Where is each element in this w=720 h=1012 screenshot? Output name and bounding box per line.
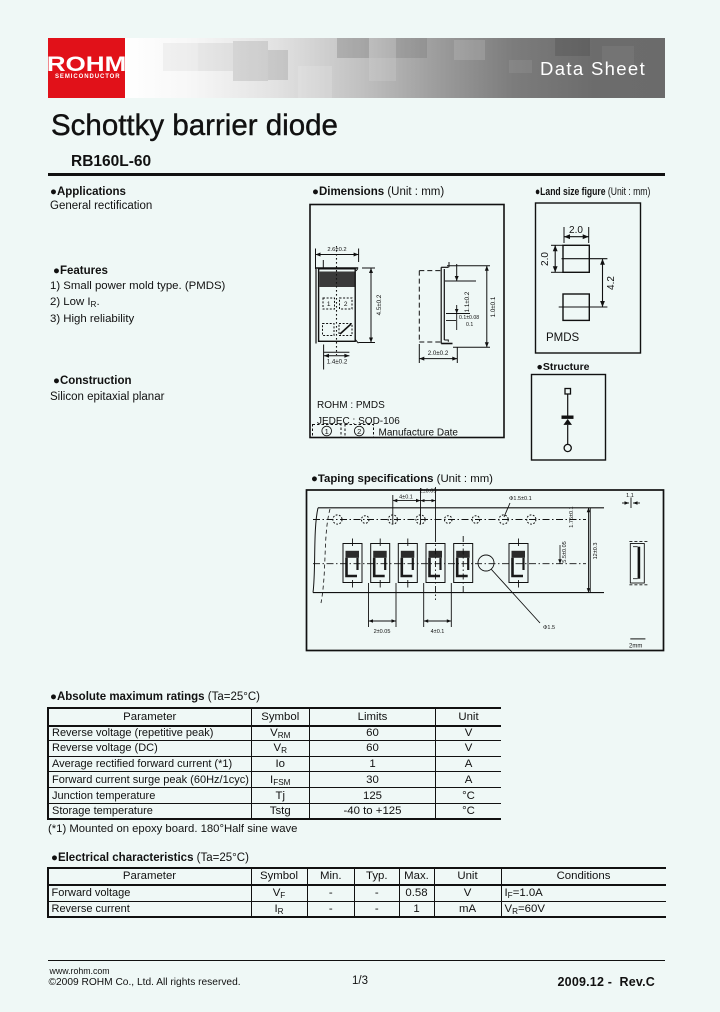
svg-text:JEDEC : SOD-106: JEDEC : SOD-106 (317, 416, 400, 427)
svg-text:4±0.1: 4±0.1 (431, 629, 445, 635)
svg-text:1.1±0.2: 1.1±0.2 (464, 291, 471, 312)
svg-text:2.0±0.2: 2.0±0.2 (428, 350, 449, 357)
svg-text:12±0.3: 12±0.3 (593, 543, 599, 560)
svg-text:1.75±0.1: 1.75±0.1 (569, 506, 575, 527)
svg-text:4.2: 4.2 (606, 276, 617, 290)
svg-text:1: 1 (327, 301, 331, 308)
svg-text:Manufacture Date: Manufacture Date (379, 428, 459, 439)
svg-text:4±0.1: 4±0.1 (399, 495, 413, 501)
svg-text:0.1±0.08: 0.1±0.08 (459, 315, 479, 321)
svg-text:2: 2 (357, 427, 361, 436)
svg-text:2mm: 2mm (629, 644, 642, 650)
svg-text:ROHM : PMDS: ROHM : PMDS (317, 400, 385, 411)
svg-text:0.1: 0.1 (466, 322, 473, 328)
svg-text:2.0: 2.0 (540, 252, 551, 266)
svg-text:2±0.05: 2±0.05 (374, 629, 391, 635)
svg-text:2.0: 2.0 (569, 225, 583, 236)
svg-text:1.0±0.1: 1.0±0.1 (490, 296, 497, 317)
svg-text:1: 1 (325, 427, 329, 436)
svg-text:2: 2 (344, 301, 348, 308)
svg-text:1.1: 1.1 (626, 493, 634, 499)
svg-text:PMDS: PMDS (546, 332, 580, 344)
svg-text:1.4±0.2: 1.4±0.2 (327, 359, 348, 366)
svg-text:2±0.05: 2±0.05 (420, 489, 437, 495)
svg-text:Φ1.5: Φ1.5 (543, 625, 555, 631)
svg-text:Φ1.5±0.1: Φ1.5±0.1 (509, 496, 532, 502)
svg-text:4.5±0.2: 4.5±0.2 (376, 294, 383, 315)
svg-text:5.5±0.05: 5.5±0.05 (562, 541, 568, 562)
